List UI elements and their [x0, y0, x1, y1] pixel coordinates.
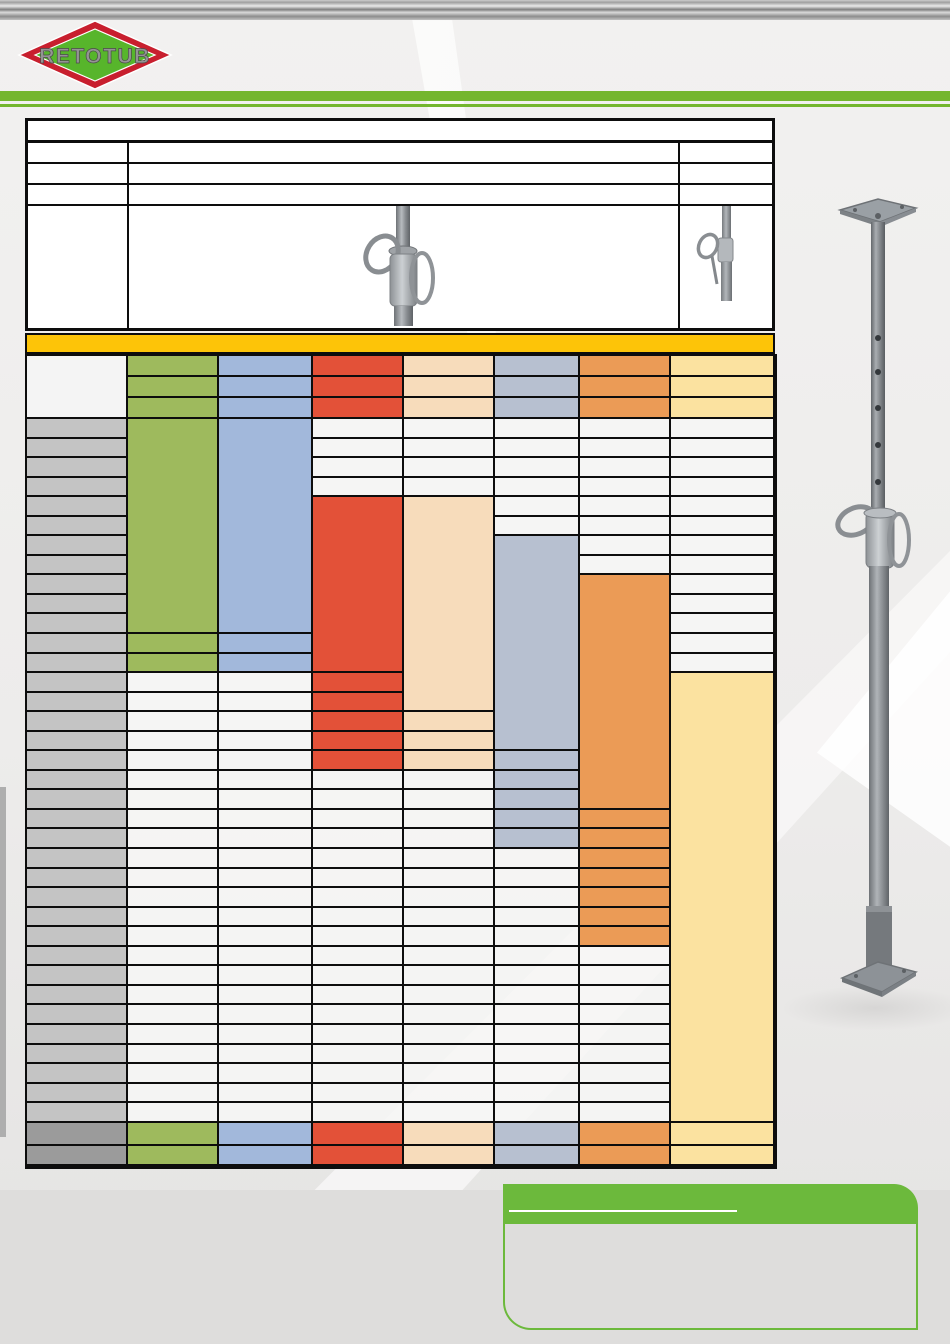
- series-green-row: [128, 810, 219, 830]
- info-image-main-cell: [129, 206, 680, 328]
- series-green-row: [128, 634, 219, 654]
- series-yellow-header: [671, 356, 775, 377]
- series-red-row: [313, 947, 404, 967]
- series-green-footer: [128, 1146, 219, 1166]
- height-labels-row: [27, 1045, 128, 1065]
- series-blue-row: [219, 1025, 313, 1045]
- series-yellow-footer: [671, 1123, 775, 1146]
- series-blue-row: [219, 908, 313, 928]
- series-peach-row: [404, 849, 495, 869]
- series-green-row: [128, 1025, 219, 1045]
- series-bluegray-row: [495, 908, 580, 928]
- series-red-row: [313, 849, 404, 869]
- series-peach-row: [404, 1045, 495, 1065]
- series-orange-row: [580, 536, 671, 556]
- series-orange-row: [580, 986, 671, 1006]
- retotub-logo: RETOTUB: [16, 20, 174, 90]
- series-red-row: [313, 458, 404, 478]
- series-green-row: [128, 927, 219, 947]
- series-red-row: [313, 1103, 404, 1123]
- series-bluegray-row: [495, 966, 580, 986]
- series-bluegray-row: [495, 517, 580, 537]
- telescopic-prop-photo: [822, 196, 934, 1006]
- series-blue-row: [219, 810, 313, 830]
- info-right-cell-1: [680, 143, 772, 164]
- series-green-row: [128, 693, 219, 713]
- height-labels-row: [27, 693, 128, 713]
- height-labels-footer: [27, 1123, 128, 1146]
- height-labels-row: [27, 908, 128, 928]
- series-blue-row: [219, 888, 313, 908]
- series-green-row: [128, 1064, 219, 1084]
- series-bluegray-row: [495, 927, 580, 947]
- series-green-row: [128, 751, 219, 771]
- height-labels-row: [27, 810, 128, 830]
- series-bluegray-row: [495, 869, 580, 889]
- series-red-header: [313, 356, 404, 377]
- series-red-row: [313, 693, 404, 713]
- series-blue-row: [219, 849, 313, 869]
- series-red-row: [313, 1084, 404, 1104]
- logo-text: RETOTUB: [39, 45, 151, 68]
- series-yellow-header: [671, 398, 775, 419]
- height-labels-row: [27, 888, 128, 908]
- series-bluegray-row: [495, 947, 580, 967]
- series-red-row: [313, 888, 404, 908]
- series-red-header: [313, 398, 404, 419]
- series-red-footer: [313, 1123, 404, 1146]
- series-yellow-row: [671, 556, 775, 576]
- series-orange-row: [580, 1064, 671, 1084]
- info-image-left-cell: [28, 206, 129, 328]
- series-bluegray-row: [495, 478, 580, 498]
- series-bluegray-footer: [495, 1146, 580, 1166]
- series-green-row: [128, 966, 219, 986]
- series-green-block: [128, 419, 219, 634]
- series-blue-row: [219, 751, 313, 771]
- series-blue-row: [219, 966, 313, 986]
- series-red-row: [313, 751, 404, 771]
- series-orange-row: [580, 497, 671, 517]
- series-peach-row: [404, 908, 495, 928]
- series-peach-row: [404, 1103, 495, 1123]
- series-blue-row: [219, 1103, 313, 1123]
- series-green-row: [128, 947, 219, 967]
- series-red-row: [313, 869, 404, 889]
- series-bluegray-row: [495, 1064, 580, 1084]
- series-red-row: [313, 439, 404, 459]
- series-blue-row: [219, 712, 313, 732]
- series-red-row: [313, 771, 404, 791]
- series-red-row: [313, 810, 404, 830]
- height-labels-row: [27, 478, 128, 498]
- series-peach-row: [404, 1025, 495, 1045]
- prop-adjustment-nut-photo: [362, 206, 446, 326]
- series-blue-footer: [219, 1123, 313, 1146]
- green-rule-thick: [0, 91, 950, 101]
- height-labels-row: [27, 771, 128, 791]
- height-labels-row: [27, 732, 128, 752]
- series-peach-row: [404, 751, 495, 771]
- series-bluegray-row: [495, 419, 580, 439]
- series-blue-row: [219, 947, 313, 967]
- series-red-row: [313, 673, 404, 693]
- height-labels-row: [27, 986, 128, 1006]
- height-labels-row: [27, 634, 128, 654]
- series-green-footer: [128, 1123, 219, 1146]
- height-labels-row: [27, 654, 128, 674]
- series-yellow-header: [671, 377, 775, 398]
- series-blue-row: [219, 829, 313, 849]
- series-yellow-row: [671, 614, 775, 634]
- series-peach-row: [404, 458, 495, 478]
- series-red-row: [313, 966, 404, 986]
- main-table: [25, 354, 777, 1169]
- series-peach-row: [404, 888, 495, 908]
- series-peach-footer: [404, 1146, 495, 1166]
- series-yellow-row: [671, 419, 775, 439]
- series-red-row: [313, 790, 404, 810]
- height-labels-row: [27, 966, 128, 986]
- series-bluegray-row: [495, 1103, 580, 1123]
- series-blue-row: [219, 1064, 313, 1084]
- green-rule-thin: [0, 104, 950, 107]
- series-bluegray-row: [495, 849, 580, 869]
- series-green-row: [128, 732, 219, 752]
- series-green-row: [128, 790, 219, 810]
- series-green-row: [128, 888, 219, 908]
- series-bluegray-row: [495, 497, 580, 517]
- height-labels-header: [27, 356, 128, 419]
- series-blue-row: [219, 1084, 313, 1104]
- series-orange-header: [580, 377, 671, 398]
- series-orange-row: [580, 517, 671, 537]
- series-green-row: [128, 829, 219, 849]
- prop-outer-tube: [869, 566, 889, 906]
- series-peach-row: [404, 869, 495, 889]
- series-peach-row: [404, 829, 495, 849]
- height-labels-row: [27, 1025, 128, 1045]
- info-table: [25, 118, 775, 331]
- series-orange-row: [580, 947, 671, 967]
- series-yellow-row: [671, 634, 775, 654]
- series-peach-row: [404, 1064, 495, 1084]
- series-peach-row: [404, 439, 495, 459]
- series-bluegray-row: [495, 1005, 580, 1025]
- series-orange-row: [580, 478, 671, 498]
- height-labels-row: [27, 536, 128, 556]
- series-peach-row: [404, 1084, 495, 1104]
- series-yellow-row: [671, 497, 775, 517]
- series-peach-block: [404, 497, 495, 712]
- height-labels-row: [27, 849, 128, 869]
- series-orange-block: [580, 575, 671, 810]
- series-peach-row: [404, 419, 495, 439]
- series-yellow-row: [671, 478, 775, 498]
- prop-inner-tube: [871, 222, 885, 514]
- height-labels-row: [27, 517, 128, 537]
- series-orange-row: [580, 966, 671, 986]
- series-yellow-row: [671, 536, 775, 556]
- series-blue-row: [219, 771, 313, 791]
- series-orange-row: [580, 556, 671, 576]
- series-orange-row: [580, 888, 671, 908]
- series-blue-row: [219, 1005, 313, 1025]
- series-green-header: [128, 377, 219, 398]
- series-bluegray-row: [495, 790, 580, 810]
- height-labels-row: [27, 751, 128, 771]
- series-peach-row: [404, 712, 495, 732]
- series-bluegray-row: [495, 439, 580, 459]
- height-labels-row: [27, 1103, 128, 1123]
- height-labels-row: [27, 614, 128, 634]
- series-orange-row: [580, 927, 671, 947]
- series-peach-row: [404, 927, 495, 947]
- series-peach-row: [404, 478, 495, 498]
- series-blue-row: [219, 654, 313, 674]
- series-green-row: [128, 1045, 219, 1065]
- height-labels-row: [27, 595, 128, 615]
- series-red-footer: [313, 1146, 404, 1166]
- series-bluegray-row: [495, 1084, 580, 1104]
- series-orange-footer: [580, 1123, 671, 1146]
- series-bluegray-row: [495, 1025, 580, 1045]
- series-bluegray-header: [495, 356, 580, 377]
- page-edge-strip: [0, 787, 6, 1137]
- series-green-row: [128, 654, 219, 674]
- height-labels-row: [27, 1005, 128, 1025]
- prop-base-plate: [842, 962, 916, 992]
- series-red-row: [313, 419, 404, 439]
- series-orange-row: [580, 1025, 671, 1045]
- series-red-row: [313, 1025, 404, 1045]
- series-green-row: [128, 712, 219, 732]
- info-label-cell-3: [28, 185, 129, 206]
- series-yellow-row: [671, 654, 775, 674]
- series-peach-row: [404, 1005, 495, 1025]
- series-bluegray-row: [495, 458, 580, 478]
- series-blue-row: [219, 869, 313, 889]
- series-blue-row: [219, 927, 313, 947]
- series-peach-row: [404, 986, 495, 1006]
- series-red-row: [313, 1064, 404, 1084]
- series-red-row: [313, 1045, 404, 1065]
- series-bluegray-footer: [495, 1123, 580, 1146]
- series-blue-header: [219, 377, 313, 398]
- series-peach-row: [404, 790, 495, 810]
- series-bluegray-row: [495, 986, 580, 1006]
- series-blue-footer: [219, 1146, 313, 1166]
- info-right-cell-2: [680, 164, 772, 185]
- series-blue-row: [219, 790, 313, 810]
- series-bluegray-row: [495, 810, 580, 830]
- series-green-row: [128, 1005, 219, 1025]
- height-labels-row: [27, 673, 128, 693]
- series-peach-footer: [404, 1123, 495, 1146]
- series-green-row: [128, 1103, 219, 1123]
- series-bluegray-block: [495, 536, 580, 751]
- series-orange-row: [580, 458, 671, 478]
- series-red-header: [313, 377, 404, 398]
- series-orange-footer: [580, 1146, 671, 1166]
- series-yellow-row: [671, 575, 775, 595]
- series-green-row: [128, 1084, 219, 1104]
- series-blue-row: [219, 1045, 313, 1065]
- info-value-cell-1: [129, 143, 680, 164]
- series-blue-row: [219, 693, 313, 713]
- series-bluegray-row: [495, 771, 580, 791]
- info-value-cell-3: [129, 185, 680, 206]
- series-red-row: [313, 927, 404, 947]
- height-labels-row: [27, 1064, 128, 1084]
- series-blue-row: [219, 986, 313, 1006]
- series-bluegray-header: [495, 377, 580, 398]
- table-title-band: [25, 333, 775, 354]
- height-labels-row: [27, 829, 128, 849]
- note-box-body: [503, 1224, 918, 1330]
- series-orange-header: [580, 356, 671, 377]
- series-red-row: [313, 478, 404, 498]
- info-value-cell-2: [129, 164, 680, 185]
- height-labels-row: [27, 869, 128, 889]
- series-peach-row: [404, 966, 495, 986]
- info-label-cell-2: [28, 164, 129, 185]
- series-orange-header: [580, 398, 671, 419]
- series-yellow-row: [671, 439, 775, 459]
- info-right-cell-3: [680, 185, 772, 206]
- series-orange-row: [580, 1084, 671, 1104]
- series-red-block: [313, 497, 404, 673]
- series-green-header: [128, 398, 219, 419]
- series-orange-row: [580, 1005, 671, 1025]
- series-yellow-block: [671, 673, 775, 1123]
- series-orange-row: [580, 869, 671, 889]
- series-green-row: [128, 673, 219, 693]
- series-yellow-row: [671, 595, 775, 615]
- series-red-row: [313, 712, 404, 732]
- series-orange-row: [580, 1045, 671, 1065]
- series-green-row: [128, 771, 219, 791]
- series-peach-header: [404, 377, 495, 398]
- height-labels-row: [27, 497, 128, 517]
- height-labels-row: [27, 575, 128, 595]
- height-labels-row: [27, 712, 128, 732]
- series-green-row: [128, 869, 219, 889]
- series-orange-row: [580, 849, 671, 869]
- series-green-row: [128, 986, 219, 1006]
- series-bluegray-row: [495, 1045, 580, 1065]
- series-orange-row: [580, 419, 671, 439]
- series-blue-row: [219, 732, 313, 752]
- series-red-row: [313, 986, 404, 1006]
- series-blue-row: [219, 673, 313, 693]
- metal-top-bar: [0, 0, 950, 20]
- height-labels-row: [27, 947, 128, 967]
- series-peach-row: [404, 771, 495, 791]
- series-yellow-row: [671, 517, 775, 537]
- series-green-header: [128, 356, 219, 377]
- info-title-cell: [28, 121, 772, 143]
- series-green-row: [128, 849, 219, 869]
- height-labels-footer: [27, 1146, 128, 1166]
- height-labels-row: [27, 790, 128, 810]
- page-canvas: RETOTUB: [0, 0, 950, 1344]
- height-labels-row: [27, 458, 128, 478]
- series-orange-row: [580, 439, 671, 459]
- series-bluegray-header: [495, 398, 580, 419]
- height-labels-row: [27, 439, 128, 459]
- series-blue-header: [219, 356, 313, 377]
- height-labels-row: [27, 1084, 128, 1104]
- height-labels-row: [27, 556, 128, 576]
- series-peach-row: [404, 810, 495, 830]
- height-labels-row: [27, 419, 128, 439]
- series-red-row: [313, 908, 404, 928]
- info-image-side-cell: [680, 206, 772, 328]
- series-blue-block: [219, 419, 313, 634]
- series-red-row: [313, 1005, 404, 1025]
- series-peach-row: [404, 732, 495, 752]
- series-red-row: [313, 829, 404, 849]
- series-peach-header: [404, 398, 495, 419]
- series-orange-row: [580, 1103, 671, 1123]
- series-bluegray-row: [495, 751, 580, 771]
- series-blue-row: [219, 634, 313, 654]
- series-blue-header: [219, 398, 313, 419]
- series-peach-row: [404, 947, 495, 967]
- series-orange-row: [580, 908, 671, 928]
- series-orange-row: [580, 829, 671, 849]
- prop-compact-photo: [695, 206, 757, 301]
- info-label-cell-1: [28, 143, 129, 164]
- note-box-title-underline: [509, 1210, 737, 1212]
- series-peach-header: [404, 356, 495, 377]
- height-labels-row: [27, 927, 128, 947]
- series-red-row: [313, 732, 404, 752]
- series-bluegray-row: [495, 829, 580, 849]
- series-yellow-footer: [671, 1146, 775, 1166]
- series-green-row: [128, 908, 219, 928]
- series-yellow-row: [671, 458, 775, 478]
- series-bluegray-row: [495, 888, 580, 908]
- note-box-header: [503, 1184, 918, 1224]
- series-orange-row: [580, 810, 671, 830]
